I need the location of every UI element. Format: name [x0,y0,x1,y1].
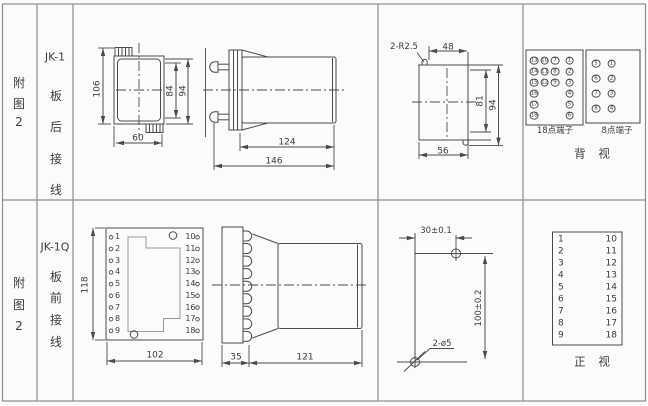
dim-hole-size: 2-ø5 [432,339,451,348]
fig-label-char: 附 [13,77,25,89]
rear-view-caption: 背 视 [574,148,610,160]
table-terminal-left: 1 [558,236,564,245]
model-label-jk1: JK-1 [45,52,65,63]
front-view-caption: 正 视 [574,356,610,368]
wiring-label-char: 前 [50,292,62,304]
fig-label-char: 2 [15,320,23,332]
front-terminal-left: 3 [115,257,120,265]
dim-body-depth-q: 121 [296,354,313,363]
table-terminal-right: 11 [603,248,617,257]
terminal18-cell: 12 [540,78,549,87]
table-terminal-left: 9 [558,332,564,341]
model-label-jk1q: JK-1Q [41,242,70,253]
front-terminal-left: 8 [115,315,120,323]
dim-front-width: 102 [146,352,163,361]
front-terminal-right: 14 [183,280,196,288]
table-terminal-right: 17 [603,320,617,329]
front-terminal-right: 16 [183,304,196,312]
wiring-label-char: 板 [50,271,62,283]
dim-cutout-height: 94 [490,99,499,110]
terminal18-cell: 7 [551,56,560,65]
terminal8-cell: 6 [592,74,601,83]
terminal8-cell: 8 [592,104,601,113]
table-terminal-right: 10 [603,236,617,245]
front-terminal-left: 4 [115,268,120,276]
terminal18-cell: 18 [530,111,539,120]
table-terminal-left: 3 [558,260,564,269]
dim-corner-radius: 2-R2.5 [390,43,418,52]
front-terminal-left: 7 [115,304,120,312]
dim-top-width: 48 [442,43,453,52]
front-terminal-right: 11 [183,245,196,253]
wiring-label-char: 线 [50,336,62,348]
wiring-label-char: 接 [50,153,62,165]
dim-width: 60 [132,135,143,144]
dim-cutout-inner-height: 81 [477,95,486,106]
dim-panel-thickness: 35 [230,354,241,363]
front-terminal-left: 9 [115,327,120,335]
table-terminal-right: 15 [603,296,617,305]
front-terminal-left: 5 [115,280,120,288]
terminal8-cell: 3 [607,89,616,98]
terminal8-cell: 7 [592,89,601,98]
dim-body-depth: 124 [278,139,295,148]
terminal18-cell: 9 [551,78,560,87]
terminal18-cell: 10 [540,56,549,65]
fig-label-char: 图 [13,98,25,110]
table-terminal-right: 12 [603,260,617,269]
table-terminal-left: 2 [558,248,564,257]
terminal18-cell: 16 [530,89,539,98]
terminal18-cell: 6 [565,111,574,120]
terminal18-cell: 2 [565,67,574,76]
dim-bottom-width: 56 [437,147,448,156]
terminal18-cell: 8 [551,67,560,76]
terminal18-cell: 3 [565,78,574,87]
table-terminal-right: 18 [603,332,617,341]
wiring-label-char: 接 [50,314,62,326]
table-terminal-left: 6 [558,296,564,305]
wiring-label-char: 板 [50,90,62,102]
front-terminal-left: 6 [115,292,120,300]
grid-lines [3,4,646,401]
front-terminal-right: 18 [183,327,196,335]
front-terminal-right: 15 [183,292,196,300]
dim-hole-pitch-h: 30±0.1 [420,227,451,236]
terminal18-cell: 11 [540,67,549,76]
table-terminal-left: 5 [558,284,564,293]
dim-window-height: 84 [167,85,176,96]
fig-label-char: 2 [15,116,23,128]
front-terminal-left: 1 [115,233,120,241]
terminal18-cell: 5 [565,100,574,109]
terminal18-cell: 13 [530,56,539,65]
table-terminal-right: 16 [603,308,617,317]
front-terminal-right: 12 [183,257,196,265]
terminal18-caption: 18点端子 [537,127,573,136]
dim-front-height: 118 [82,276,91,293]
dim-total-depth: 146 [265,158,282,167]
terminal8-cell: 4 [607,104,616,113]
terminal18-cell: 14 [530,67,539,76]
dim-height: 106 [94,80,103,97]
fig-label-char: 附 [13,277,25,289]
front-terminal-right: 13 [183,268,196,276]
dim-total-height: 94 [179,85,188,96]
table-terminal-left: 8 [558,320,564,329]
wiring-label-char: 后 [50,121,62,133]
terminal8-caption: 8点端子 [602,127,633,136]
fig-label-char: 图 [13,299,25,311]
front-terminal-left: 2 [115,245,120,253]
terminal8-cell: 1 [607,59,616,68]
dim-hole-pitch-v: 100±0.2 [474,289,483,326]
front-terminal-right: 17 [183,315,196,323]
terminal18-cell: 17 [530,100,539,109]
jk1-side-view-drawing [203,48,346,170]
wiring-label-char: 线 [50,184,62,196]
table-terminal-right: 13 [603,272,617,281]
terminal8-cell: 2 [607,74,616,83]
terminal18-cell: 1 [565,56,574,65]
terminal18-cell: 4 [565,89,574,98]
front-terminal-right: 10 [183,233,196,241]
figure-sheet: 附 图 2 JK-1 板 后 接 线 106 84 94 60 124 146 … [0,0,648,406]
table-terminal-left: 7 [558,308,564,317]
table-terminal-left: 4 [558,272,564,281]
terminal8-cell: 5 [592,59,601,68]
terminal18-cell: 15 [530,78,539,87]
jk1q-side-view-drawing [212,227,368,367]
table-terminal-right: 14 [603,284,617,293]
